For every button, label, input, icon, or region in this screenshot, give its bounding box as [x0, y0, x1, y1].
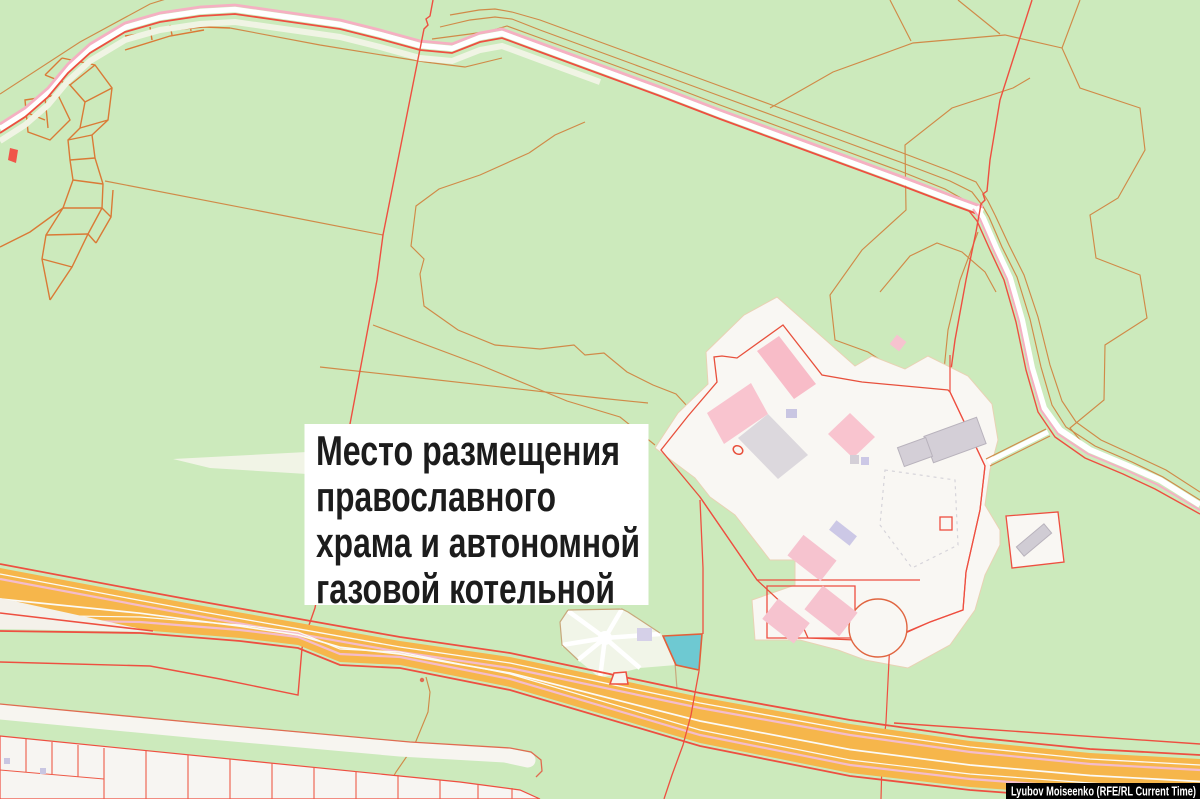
- svg-text:Место размещения: Место размещения: [316, 427, 620, 474]
- svg-text:православного: православного: [316, 473, 556, 520]
- svg-text:газовой котельной: газовой котельной: [316, 565, 615, 612]
- svg-text:Lyubov Moiseenko (RFE/RL Curre: Lyubov Moiseenko (RFE/RL Current Time): [1011, 785, 1196, 799]
- svg-text:храма и автономной: храма и автономной: [316, 519, 640, 566]
